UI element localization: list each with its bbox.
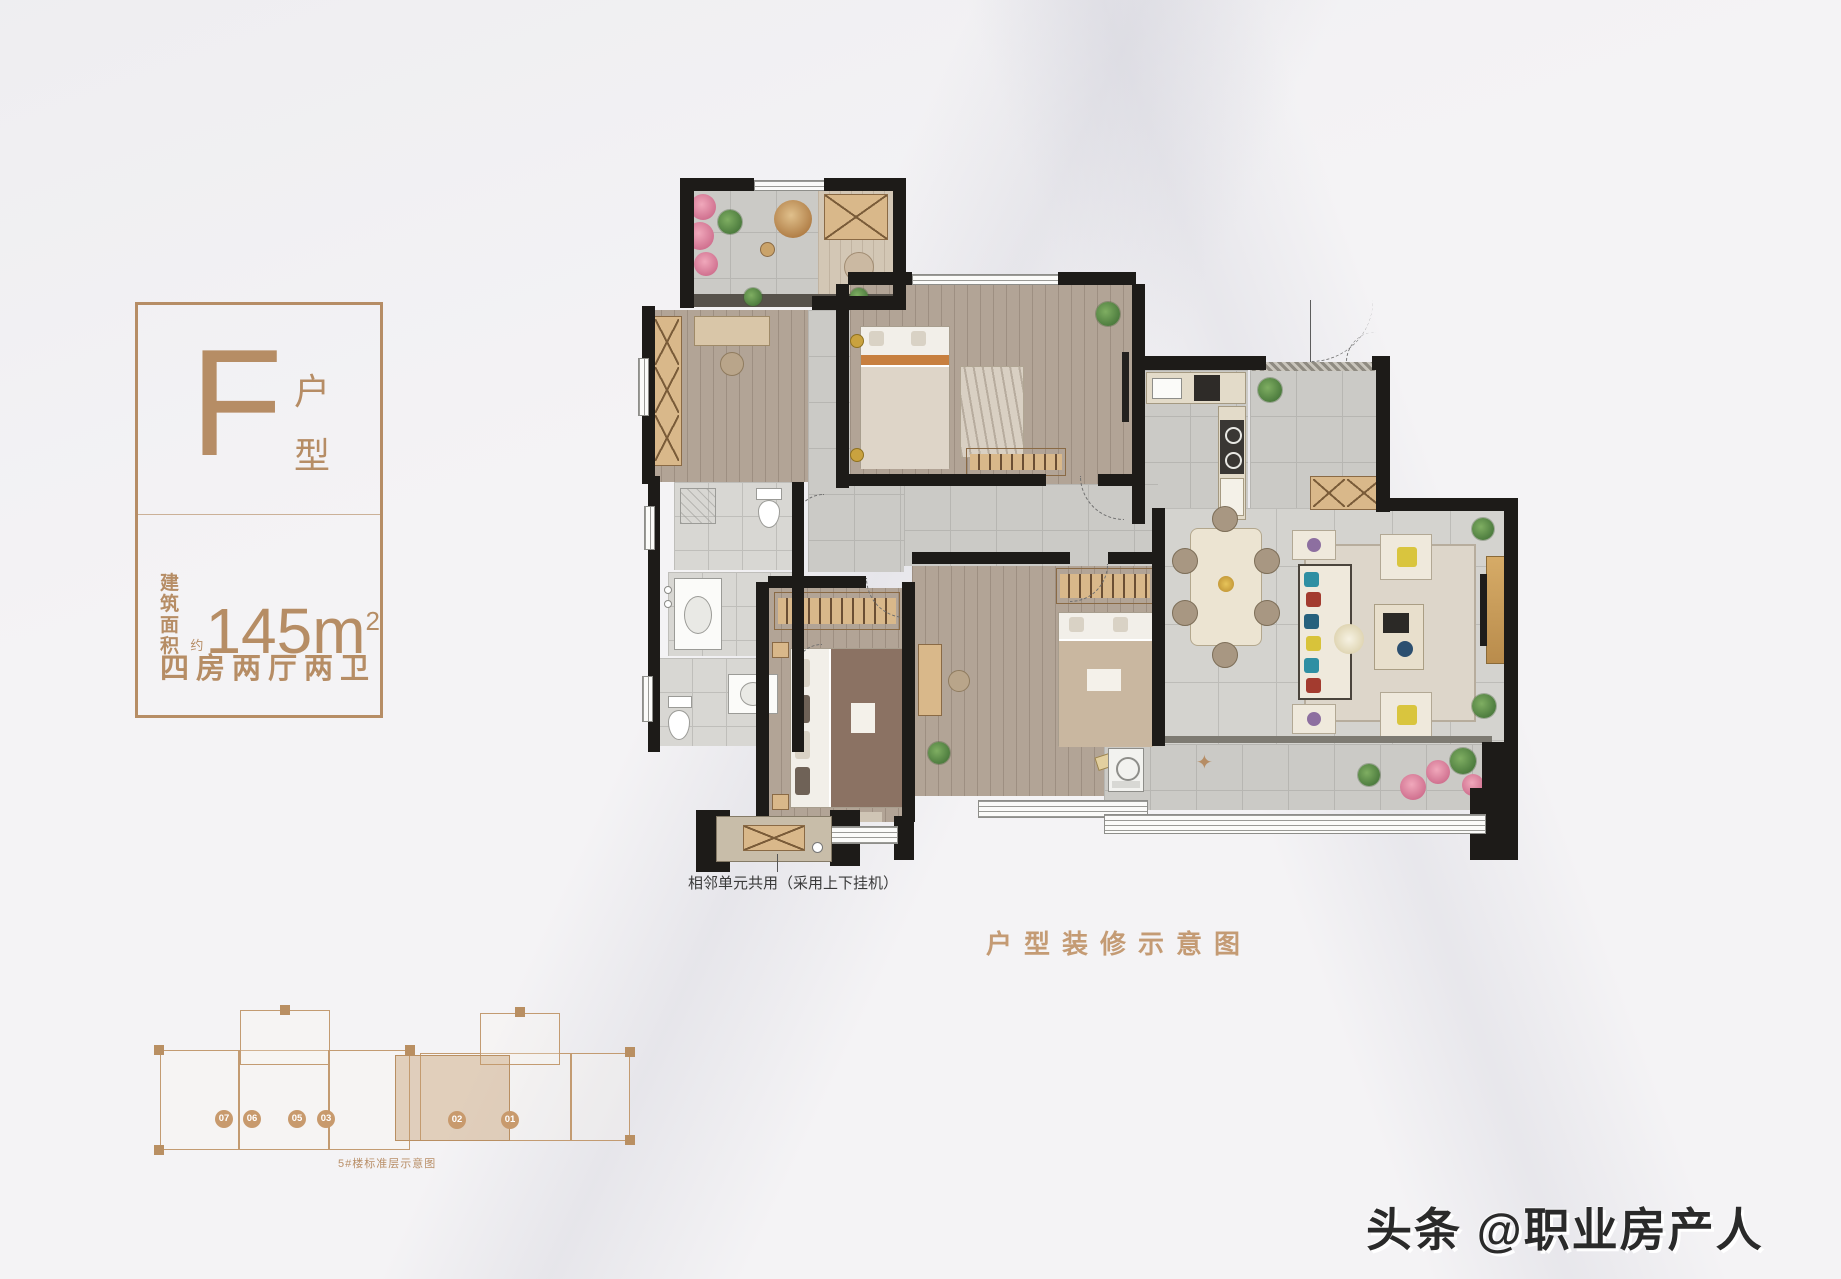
stove-icon <box>1220 420 1244 474</box>
flower-bed-icon <box>1426 760 1450 784</box>
area-label-1: 建筑 <box>160 573 186 615</box>
flower-bed-icon <box>694 252 718 276</box>
cooktop-icon <box>1194 375 1220 401</box>
ac-platform <box>716 816 832 862</box>
wall-segment <box>768 576 866 588</box>
potted-plant-icon <box>928 742 950 764</box>
dining-chair-icon <box>1172 600 1198 626</box>
unit-number-01: 01 <box>501 1111 519 1129</box>
wall-segment <box>1504 498 1518 746</box>
dining-chair-icon <box>1172 548 1198 574</box>
rug-icon <box>960 366 1024 458</box>
potted-plant-icon <box>1258 378 1282 402</box>
desk-icon <box>918 644 942 716</box>
shoe-cabinet-icon <box>1310 476 1384 510</box>
nightstand-icon <box>772 794 789 810</box>
plan-caption: 户型装修示意图 <box>986 924 1252 961</box>
armchair-icon <box>1380 534 1432 580</box>
wall-segment <box>836 284 849 488</box>
wall-segment <box>848 272 912 285</box>
tv-icon <box>1122 352 1129 422</box>
desk-icon <box>694 316 770 346</box>
balcony-door-track <box>1160 736 1492 743</box>
unit-number-06: 06 <box>243 1110 261 1128</box>
shower-icon <box>680 488 716 524</box>
kitchen-sink-icon <box>1152 378 1182 399</box>
balcony-plant-icon <box>1450 748 1476 774</box>
area-power: 2 <box>366 611 380 631</box>
wall-segment <box>1376 356 1390 512</box>
potted-plant-icon <box>1472 518 1494 540</box>
dining-chair-icon <box>1212 506 1238 532</box>
badge-divider <box>138 514 380 515</box>
wall-segment <box>1132 284 1145 524</box>
flower-bed-icon <box>1400 774 1426 800</box>
watermark: 头条 @职业房产人 <box>1366 1194 1764 1260</box>
potted-plant-icon <box>1096 302 1120 326</box>
desk-chair-icon <box>720 352 744 376</box>
armchair-icon <box>1380 692 1432 738</box>
unit-letter: F <box>190 327 283 479</box>
small-pot-icon <box>760 242 775 257</box>
toilet-tank-icon <box>668 696 692 708</box>
lamp-icon <box>850 448 864 462</box>
lamp-icon <box>850 334 864 348</box>
wall-segment <box>680 178 754 191</box>
unit-number-05: 05 <box>288 1110 306 1128</box>
wall-segment <box>1376 498 1518 511</box>
bedroom-wardrobe-icon <box>966 448 1066 476</box>
unit-type-badge: F 户 型 建筑 面积 约 145m 2 四房两厅两卫 <box>135 302 383 718</box>
coffee-table-icon <box>1374 604 1424 670</box>
bedroom-bed-icon <box>860 326 950 468</box>
key-plan-left-core <box>240 1010 330 1065</box>
balcony-plant-icon <box>1358 764 1380 786</box>
side-table-icon <box>1292 530 1336 560</box>
dining-chair-icon <box>1254 600 1280 626</box>
ac-note: 相邻单元共用（采用上下挂机） <box>688 872 898 893</box>
window <box>642 676 653 722</box>
layout-text: 四房两厅两卫 <box>160 645 376 687</box>
bedroom-bed-icon <box>1058 612 1154 746</box>
sink-icon <box>684 596 712 634</box>
annotation-leader-line <box>777 854 778 872</box>
window <box>754 180 826 191</box>
cabinet-icon <box>824 194 888 240</box>
study-wardrobe-icon <box>652 316 682 466</box>
desk-chair-icon <box>948 670 970 692</box>
unit-type-char-bottom: 型 <box>294 427 330 479</box>
ledge-plant-icon <box>744 288 762 306</box>
compass-star-icon: ✦ <box>1196 750 1213 775</box>
unit-type-char-top: 户 <box>294 363 330 415</box>
wall-segment <box>1058 272 1136 285</box>
faucet-knob-icon <box>664 600 672 608</box>
window <box>912 274 1060 285</box>
wall-segment <box>680 178 694 308</box>
washing-machine-icon <box>1108 748 1144 792</box>
key-plan-caption: 5#楼标准层示意图 <box>338 1155 436 1171</box>
wall-segment <box>792 482 804 752</box>
wall-segment <box>1482 742 1518 788</box>
flower-vase-icon <box>1334 624 1364 654</box>
basket-icon <box>774 200 812 238</box>
wall-segment <box>1250 356 1266 370</box>
entry-threshold <box>1252 362 1378 371</box>
floor-plan-rendering <box>598 176 1526 886</box>
wall-segment <box>812 296 906 310</box>
master-bed-icon <box>790 648 902 808</box>
window <box>644 506 655 550</box>
dining-chair-icon <box>1212 642 1238 668</box>
wall-segment <box>1152 564 1165 746</box>
potted-plant-icon <box>1472 694 1496 718</box>
side-table-icon <box>1292 704 1336 734</box>
window <box>638 358 649 416</box>
unit-number-03: 03 <box>317 1110 335 1128</box>
key-plan-left-wing <box>160 1050 410 1150</box>
faucet-knob-icon <box>664 586 672 594</box>
balcony-railing-window <box>1104 814 1486 834</box>
floor-plan-poster: { "colors": { "accent": "#b68d65", "capt… <box>0 0 1841 1279</box>
unit-number-07: 07 <box>215 1110 233 1128</box>
unit-number-02: 02 <box>448 1111 466 1129</box>
wall-segment <box>893 178 906 310</box>
wall-segment <box>1098 474 1134 486</box>
potted-plant-icon <box>718 210 742 234</box>
dining-chair-icon <box>1254 548 1280 574</box>
wall-segment <box>902 582 915 822</box>
building-key-plan: 07 06 05 03 02 01 5#楼标准层示意图 <box>150 1005 650 1183</box>
wall-segment <box>1108 552 1154 564</box>
wall-segment <box>1138 356 1254 370</box>
toilet-tank-icon <box>756 488 782 500</box>
wall-segment <box>756 582 769 824</box>
tv-icon <box>1480 574 1487 646</box>
wall-segment <box>848 474 1046 486</box>
nightstand-icon <box>772 642 789 658</box>
wall-segment <box>912 552 1070 564</box>
centerpiece-icon <box>1218 576 1234 592</box>
